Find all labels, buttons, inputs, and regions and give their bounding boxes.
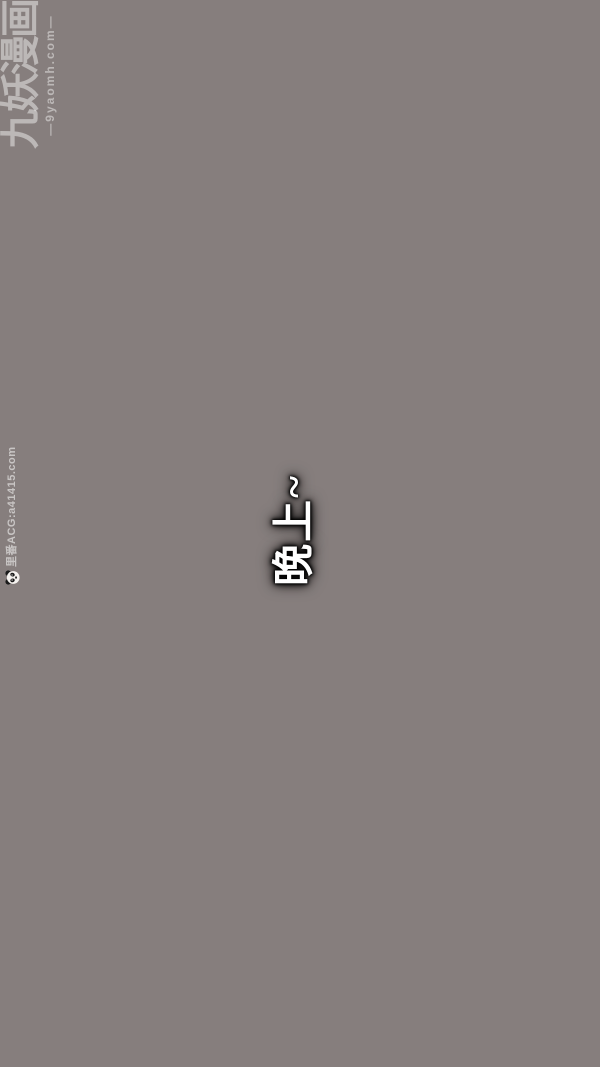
site-watermark: 九妖漫画 —9yaomh.com— <box>0 0 62 150</box>
side-watermark-label: 里番ACG:a41415.com <box>6 447 18 568</box>
site-watermark-domain: —9yaomh.com— <box>42 14 58 135</box>
site-watermark-title: 九妖漫画 <box>0 1 42 149</box>
dialogue-caption: 晚上~ <box>264 462 316 598</box>
panda-icon <box>4 569 21 586</box>
side-watermark: 里番ACG:a41415.com <box>2 452 22 586</box>
dialogue-text: 晚上~ <box>260 474 321 586</box>
